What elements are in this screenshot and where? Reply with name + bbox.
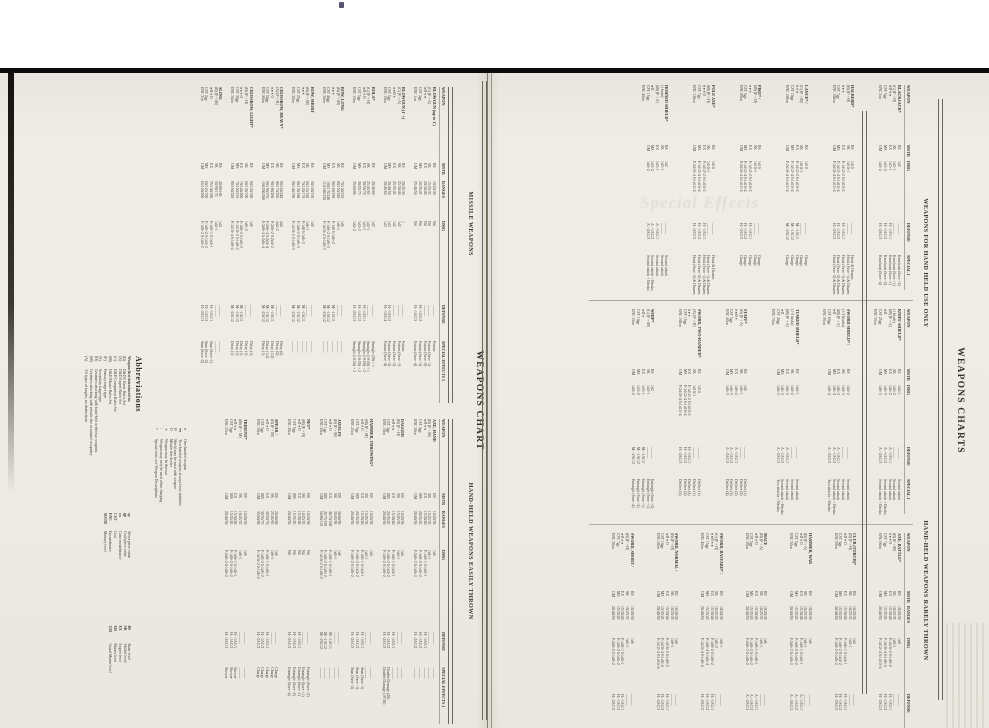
weapon-name: JAVELIN <box>337 419 342 493</box>
cell-value: GM <box>290 163 295 181</box>
cell-value: Second attack + Breaks <box>650 255 655 289</box>
cell-value: Hook (Save -1) & Disarm <box>840 255 845 289</box>
weapon-cell: AXE, HAND(B) [P + M]●Ø✶●CST 4gpENC 30cn <box>412 419 436 493</box>
cell-value: ——— <box>840 447 845 479</box>
code-meaning: Creatures attacking with missile fire or… <box>88 369 93 499</box>
cell-value: 1d6 <box>274 550 279 632</box>
weapon-encumbrance: ENC 30cn <box>610 533 615 591</box>
abbr-legend-item: BSBasic level <box>127 626 132 725</box>
cell-value: ——— <box>335 305 340 341</box>
cell-value: 1d8 <box>674 638 679 694</box>
weapon-cell: SLING(B) [P + M]●Ø✶OCST 2gpENC 2cn <box>199 87 223 163</box>
section-title-easily-thrown: HAND-HELD WEAPONS EASILY THROWN <box>467 374 474 728</box>
cell-value: MS <box>265 163 270 181</box>
cell-value: A: -1AC/1 <box>887 447 892 479</box>
data-column: BSSKEXMSGM <box>724 369 748 385</box>
abbr-legend-2: BSBasic levelSKSkilled levelEXExpert lev… <box>83 626 131 725</box>
cell-value: MS <box>386 493 391 511</box>
column-header-row: WEAPONMSTRRANGESDMGDEFENSESPECIAL EFFECT… <box>439 87 446 403</box>
cell-value: 35/60/80 <box>351 181 356 221</box>
cell-value: Charge <box>743 255 748 289</box>
cell-value: P:1d8+2 S:1d6+2 <box>615 638 620 694</box>
abbr-glyph: GM <box>107 626 112 640</box>
cell-value: 1d10 <box>803 161 808 223</box>
cell-value: H: -1AC/2 <box>417 632 422 667</box>
cell-value: 80/130/180 <box>295 181 300 221</box>
cell-value: P:1d6+2 S:1d4+2 <box>386 550 391 632</box>
cell-value: H: -1AC/1 <box>687 447 692 479</box>
weapon-symbols: ●✶● <box>794 85 799 145</box>
abbr-meaning: Skilled level <box>122 644 127 663</box>
cell-value: H: -1AC/1 <box>747 223 752 255</box>
cell-value: SK <box>847 591 852 606</box>
cell-value: Hook (Save -1) & Disarm <box>706 255 711 289</box>
cell-value: 10/25/35 <box>847 606 852 638</box>
symbol-glyph: * <box>153 428 158 436</box>
cell-value: 45/75/105 <box>323 511 328 550</box>
cell-value: M: -1AC/1 <box>640 447 645 479</box>
cell-value: Deflect (2) <box>682 479 687 513</box>
weapon-name: STAFF* <box>743 309 748 369</box>
symbol-glyph: Ø <box>173 428 178 436</box>
cell-value: GM <box>677 369 682 385</box>
data-column: 1d61d6+1P:1d8+1 S:1d6+1P:1d8+2 S:1d6+2P:… <box>610 638 634 694</box>
cell-value: Entangle (Save +1) <box>301 667 306 724</box>
weapon-name: PIKE* / <box>757 85 762 145</box>
weapon-cost: CST 5gp <box>743 85 748 145</box>
data-column: 1d61d6+1P:1d8+1 S:1d6+1P:1d8+2 S:1d6+2P:… <box>318 550 342 632</box>
cell-value: 1d10 <box>696 385 701 447</box>
cell-value: P:1d10+2 S:1d8+2 <box>664 638 669 694</box>
cell-value: Knockout (Save -1) <box>887 255 892 289</box>
cell-value: H: -1AC/1 <box>208 305 213 341</box>
intro-codes-column: Weapon first introduced in: (B)D&D® Basi… <box>83 356 131 499</box>
weapon-cell: NET*(M) [P + H]●Ø✶OCST 5gpENC 20cn <box>286 419 310 493</box>
cell-value: 1d6 <box>743 385 748 447</box>
cell-value: Second attack <box>664 255 669 289</box>
weapon-availability-code: (B) [P + M] <box>213 87 218 163</box>
cell-value: SK <box>758 591 763 606</box>
cell-value: Nil <box>431 221 436 305</box>
cell-value: SK <box>659 145 664 161</box>
data-column: 80/160/24080/170/25090/180/26090/190/270… <box>260 181 284 221</box>
weapon-name: MACE <box>763 533 768 591</box>
data-column: ——————A: -1AC/1A: -1AC/2A: -2AC/3 <box>724 447 748 479</box>
cell-value: 10/20/30 <box>431 181 436 221</box>
cell-value: P:1d6+2 S:1d4+2 <box>204 221 209 305</box>
cell-value: 15/35/45 <box>749 606 754 638</box>
cell-value: Skewer <box>233 667 238 724</box>
cell-value: EX <box>330 163 335 181</box>
cell-value: 1 <box>401 221 406 305</box>
cell-value: EX <box>664 591 669 606</box>
cell-value: 10/25/35 <box>301 511 306 550</box>
cell-value: Delay (1) <box>239 341 244 399</box>
weapon-cost: CST 1gp <box>323 419 328 493</box>
data-column: ——————H: -1AC/1H: -1AC/2H: -2AC/3 <box>831 223 855 255</box>
weapon-encumbrance: ENC 50cn <box>229 87 234 163</box>
screenshot-root: Special Effects WEAPONS CHART MISSILE WE… <box>0 0 989 728</box>
cell-value: P:1d8+2 S:1d6+2 <box>417 550 422 632</box>
cell-value: P:1d8+1 S:1d6+1 <box>264 550 269 632</box>
section-title-missile: MISSILE WEAPONS <box>467 73 474 374</box>
weapon-encumbrance: ENC 30cn <box>744 533 749 591</box>
cell-value: P:1d8+1 S:1d6+1 <box>620 638 625 694</box>
weapon-encumbrance: ENC 120cn <box>691 85 696 145</box>
cell-value: 60/110/160 <box>305 181 310 221</box>
cell-value: P:1d12+2 S:1d10+2 <box>747 161 752 223</box>
cell-value: ——— <box>391 305 396 341</box>
data-column: BSSKEXMSGM <box>255 493 279 511</box>
data-column: 1d101d10+1P:1d12+2 S:1d10+2P:1d12+4 S:1d… <box>784 161 808 223</box>
weapon-availability-code: (B) [P + M] <box>427 419 432 493</box>
data-column: 1d101d10+1P:1d12+2 S:1d10+2P:1d12+4 S:1d… <box>831 161 855 223</box>
cell-value: ——— <box>213 305 218 341</box>
weapon-symbols: ●Ø✶● <box>422 87 427 163</box>
cell-value: ——— <box>412 667 417 724</box>
cell-value: EX <box>620 591 625 606</box>
weapon-cost: CST 10gp <box>660 533 665 591</box>
data-column: BSSKEXMSGM <box>833 591 857 606</box>
cell-value: Entangle (Save +2) <box>305 667 310 724</box>
cell-value: Hook (Save -2) & Disarm <box>696 255 701 289</box>
weapon-availability-code: (M) [P + H] <box>752 85 757 145</box>
cell-value: BS <box>664 145 669 161</box>
weapon-cost: CST 30gp <box>234 87 239 163</box>
cell-value: SK <box>238 493 243 511</box>
data-column: 1d101d10+1P:1d12+2 S:1d10+2P:1d12+4 S:1d… <box>738 161 762 223</box>
cell-value: P:1d8 S:1d6+2 <box>330 221 335 305</box>
data-column: Strangle (20) + 1Strangle (19-20) + 1Str… <box>351 341 375 399</box>
weapon-entry: BOW, LONG(B) [P + M]●●✶CST 40gpENC 30cnB… <box>321 87 345 403</box>
cell-value: ——— <box>248 305 253 341</box>
cell-value: Hook (Save -2) & Disarm <box>691 255 696 289</box>
weapon-entry: AXE, HAND(B) [P + M]●Ø✶●CST 4gpENC 30cnB… <box>412 419 436 724</box>
cell-value: P:1d10+4 S:1d8+4 <box>229 221 234 305</box>
cell-value: M: -1AC/2 <box>323 632 328 667</box>
cell-value: Second attack <box>654 255 659 289</box>
cell-value: Second attack + Breaks <box>877 479 882 513</box>
cell-value: 55/100/180 <box>208 181 213 221</box>
weapon-cost: CST 15gp <box>645 85 650 145</box>
cell-value: ——— <box>799 223 804 255</box>
cell-value: 1d3+1 <box>654 161 659 223</box>
cell-value: H: -1AC/2 <box>354 632 359 667</box>
cell-value: MS <box>326 163 331 181</box>
data-column: Hook & DisarmHook (Save -1) & DisarmHook… <box>691 255 715 289</box>
cell-value: 1d2 <box>664 161 669 223</box>
weapon-cell: SPEAR /(B) [P + M]●Ø✶OCST 3gpENC 30cn <box>255 419 279 493</box>
abbr-legend-item: GMGrand Master level <box>107 626 112 725</box>
weapon-entry: POLE AXE*(M) [P + H]●●✶OCST 7gpENC 120cn… <box>691 85 715 290</box>
data-column: 1d21d2+11d3+11d3+21d4+2 <box>351 221 375 305</box>
cell-value: 1d4+1 <box>364 550 369 632</box>
cell-value: M: -2AC/2 <box>784 223 789 255</box>
data-column: ——————M: -1AC/1M: -1AC/2M: -2AC/2 <box>260 305 284 341</box>
symbol-meaning: One-handed weapon <box>182 439 187 470</box>
cell-value: 15/30/40 <box>753 606 758 638</box>
data-column: BSSKEXMSGM <box>826 369 850 385</box>
cell-value: M: -2AC/2 <box>318 632 323 667</box>
cell-value: 1d6+3 <box>882 385 887 447</box>
data-column: 1d81d8+1P:1d10+2 S:1d8+2P:1d10+4 S:1d8+4… <box>877 638 901 694</box>
cell-value: Hook & Disarm <box>850 255 855 289</box>
cell-value: 15/25/35 <box>395 511 400 550</box>
cell-value: ——— <box>290 341 295 399</box>
weapon-cost: CST 5gp <box>882 85 887 145</box>
cell-value: Second attack + Breaks <box>831 479 836 513</box>
cell-value: 15/30/40 <box>709 606 714 638</box>
cell-value: MS <box>356 163 361 181</box>
column-header: SPECIAL 1 <box>906 479 911 513</box>
weapon-encumbrance: ENC 10cn <box>381 419 386 493</box>
cell-value: GM <box>775 369 780 385</box>
data-column: ——————H: -1AC/1H: -1AC/2H: -2AC/3 <box>691 223 715 255</box>
cell-value: P:1d12+2 S:1d10+2 <box>794 161 799 223</box>
cell-value: Delay (1/2) <box>265 341 270 399</box>
code-glyph: (M) <box>107 356 112 366</box>
data-column: BSSKEXMSGM <box>877 591 901 606</box>
weapon-availability-code: (C) [P + A] <box>396 87 401 163</box>
cell-value: P:1d12+4 S:1d10+4 <box>682 385 687 447</box>
cell-value: H: -2AC/2 <box>255 632 260 667</box>
cell-value: 1d6 <box>337 550 342 632</box>
cell-value: BS <box>852 591 857 606</box>
data-column: ——————H: -1AC/1H: -1AC/2H: -2AC/2 <box>412 632 436 667</box>
cell-value: MS <box>882 591 887 606</box>
cell-value: ——— <box>669 694 674 728</box>
cell-value: GM <box>318 493 323 511</box>
column-header: WEAPON <box>441 87 446 163</box>
weapon-cell: POLE AXE*(M) [P + H]●●✶OCST 7gpENC 120cn <box>691 85 715 145</box>
cell-value: P:1d6+2 S:1d4+2 <box>838 638 843 694</box>
cell-value: BS <box>896 369 901 385</box>
data-column: ——————M: -1AC/1M: -1AC/2M: -2AC/3 <box>631 447 655 479</box>
code-meaning: D&D Expert Rules Set <box>117 369 122 499</box>
cell-value: A: -1AC/2 <box>650 223 655 255</box>
cell-value: 50/100/150 <box>309 181 314 221</box>
cell-value: 1d6 <box>431 550 436 632</box>
cell-value: 1d4+2 <box>645 161 650 223</box>
cell-value: 20/40/50 <box>877 606 882 638</box>
cell-value: 1d10 <box>710 161 715 223</box>
abbr-legend-item: cnCoin encumbrance <box>117 513 122 612</box>
cell-value: ——— <box>852 694 857 728</box>
cell-value: 30/40/50 <box>387 181 392 221</box>
cell-value: BS <box>309 163 314 181</box>
cell-value: Stun (Save -1) <box>359 667 364 724</box>
cell-value: 10/20/30 <box>674 606 679 638</box>
cell-value: SK <box>213 163 218 181</box>
data-column: PoisonPoison (Save -1)Poison (Save -2)Po… <box>382 341 406 399</box>
weapon-symbols: ●Ø✶O <box>208 87 213 163</box>
code-legend-item: (M)D&D Master Rules Set <box>107 356 112 499</box>
data-column: BSSKEXMSGM <box>412 493 436 511</box>
data-column: Entangle (Save +2)Entangle (Save +1)Enta… <box>631 479 655 513</box>
cell-value: BS <box>763 591 768 606</box>
cell-value: H: -1AC/1 <box>361 305 366 341</box>
cell-value: EX <box>798 591 803 606</box>
cell-value: 20/40/60 <box>274 511 279 550</box>
data-column: ——————A: -1AC/1A: -1AC/2A: -2AC/3 <box>744 694 768 728</box>
cell-value: 15/30/40 <box>422 511 427 550</box>
cell-value: BS <box>340 163 345 181</box>
weapon-cost: CST 7gp <box>615 533 620 591</box>
cell-value: BS <box>896 591 901 606</box>
cell-value: ——— <box>696 447 701 479</box>
data-column: 1d61d6+1P:1d8 S:1d6+2P:1d8+2 S:1d6+3P:1d… <box>321 221 345 305</box>
column-header: RANGES <box>441 511 446 550</box>
abbr-glyph: SK <box>122 626 127 640</box>
abbr-glyph: gp <box>122 513 127 527</box>
cell-value: 15/30/40 <box>296 511 301 550</box>
cell-value: Stun (Save -1) <box>208 341 213 399</box>
cell-value: 1d8+4 <box>826 385 831 447</box>
cell-value: Poison (Save -2) <box>391 341 396 399</box>
cell-value: 1d4+2 <box>877 161 882 223</box>
cell-value: ——— <box>396 305 401 341</box>
cell-value: Skewer <box>223 667 228 724</box>
weapon-cost: CST 7gp <box>836 85 841 145</box>
data-column: NilNilNilNilNil <box>286 550 310 632</box>
weapon-cell: BOW, SHORT(B) [P + M]●●✶CST 25gpENC 20cn <box>290 87 314 163</box>
cell-value: BS <box>674 591 679 606</box>
cell-value: MS <box>789 145 794 161</box>
weapon-name: POLE AXE* <box>710 85 715 145</box>
left-page: WEAPONS CHART MISSILE WEAPONS HAND-HELD … <box>8 73 487 728</box>
data-column: BSSKEXMSGM <box>290 163 314 181</box>
code-glyph: (H) <box>93 356 98 366</box>
data-column: BSSKEXMSGM <box>784 145 808 161</box>
cell-value: P:2d6+2 S:1d8+2 <box>744 638 749 694</box>
cell-value: 15/30/40 <box>359 511 364 550</box>
data-column: 1d21d2+11d3+11d3+21d4+2 <box>645 161 669 223</box>
cell-value: A: -1AC/2 <box>749 694 754 728</box>
cell-value: P:1d8+2 S:1d6+2 <box>260 550 265 632</box>
data-column: PoisonPoison (Save -1)Poison (Save -2)Po… <box>412 341 436 399</box>
data-column: BSSKEXMSGM <box>260 163 284 181</box>
data-column: ——————M: -1AC/1M: -1AC/2M: -2AC/2 <box>290 305 314 341</box>
cell-value: MS <box>650 145 655 161</box>
data-column: 10/20/3010/25/3515/30/4015/35/4520/40/50 <box>286 511 310 550</box>
cell-value: 10/20/30 <box>763 606 768 638</box>
data-column: ——————H: -1AC/1H: -1AC/2H: -2AC/3 <box>877 694 901 728</box>
cell-value: ——— <box>218 341 223 399</box>
cell-value: 1d4 <box>852 638 857 694</box>
cell-value: EX <box>840 145 845 161</box>
weapon-entry: TUSKED SHIELD*(1-3 tusks)(M) [P + A]●ØCS… <box>770 309 798 514</box>
cell-value: M: -1AC/2 <box>636 447 641 479</box>
cell-value: H: -1AC/2 <box>228 632 233 667</box>
cell-value: Knockout (Save +2) <box>896 255 901 289</box>
abbr-meaning: Grand Master level <box>107 644 112 673</box>
cell-value: ——— <box>242 667 247 724</box>
cell-value: ——— <box>295 341 300 399</box>
cell-value: Poison <box>431 341 436 399</box>
weapon-entry: SWORD, NORMAL /(B) [P + H]●Ø✶OCST 10gpEN… <box>655 533 679 728</box>
data-column: 1d101d10+1P:1d12+2 S:1d10+2P:1d12+4 S:1d… <box>691 161 715 223</box>
cell-value: 1d6+1 <box>269 550 274 632</box>
cell-value: BS <box>850 145 855 161</box>
cell-value: 1d8+1 <box>892 638 897 694</box>
code-glyph: (S) <box>98 356 103 366</box>
cell-value: 10/25/35 <box>625 606 630 638</box>
cell-value: 30/45/60 <box>382 181 387 221</box>
cell-value: Nil <box>427 221 432 305</box>
cell-value: EX <box>239 163 244 181</box>
weapon-availability-code: (B) [P + H] <box>845 85 850 145</box>
cell-value: EX <box>654 145 659 161</box>
cell-value: 1d4+2 <box>631 385 636 447</box>
column-header: SPECIAL EFFECTS 1 <box>441 341 446 399</box>
cell-value: BS <box>629 591 634 606</box>
cell-value: BS <box>431 163 436 181</box>
weapon-cost: CST 15gp <box>682 309 687 369</box>
cell-value: Knockout (Save +1) <box>892 255 897 289</box>
cell-value: SK <box>752 145 757 161</box>
weapon-symbols: ●●✶O <box>701 85 706 145</box>
cell-value: ——— <box>803 694 808 728</box>
cell-value: 50/90/170 <box>213 181 218 221</box>
weapon-name: SWORD SHIELD* / <box>845 309 850 369</box>
abbr-legend-item: gpGold piece value <box>122 513 127 612</box>
cell-value: ——— <box>337 667 342 724</box>
data-column: 10/20/3015/25/3515/30/4020/35/4520/40/50 <box>412 511 436 550</box>
cell-value: P:2d6+2 S:1d8+2 <box>610 638 615 694</box>
cell-value: ——— <box>300 341 305 399</box>
weapon-cell: TRIDENT*(M) [P + M]●Ø✶●CST 5gpENC 25cn <box>223 419 247 493</box>
data-column: Delay (1)Delay (1)Delay (1)Delay (1)Dela… <box>229 341 253 399</box>
cell-value: ——— <box>400 632 405 667</box>
data-column: ——————H: -1AC/1H: -1AC/2H: -2AC/3 <box>381 632 405 667</box>
weapon-encumbrance: ENC 100cn <box>677 309 682 369</box>
table-top-rule <box>448 87 453 403</box>
weapon-availability-code: (B) [P + A] <box>738 309 743 369</box>
data-column: ——————M: -1AC/1M: -1AC/2M: -2AC/2 <box>318 632 342 667</box>
cell-value: EX <box>887 145 892 161</box>
cell-value: Nil <box>417 221 422 305</box>
code-legend-item: (A)All types of targets, no distinctions <box>83 356 88 499</box>
weapon-symbols: ●Ø✶● <box>390 419 395 493</box>
cell-value: ——— <box>390 667 395 724</box>
weapon-encumbrance: ENC 20cn <box>290 87 295 163</box>
cell-value: ——— <box>847 694 852 728</box>
cell-value: Entangle (Save -1) <box>296 667 301 724</box>
cell-value: M: -1AC/1 <box>794 223 799 255</box>
cell-value: P:2d10+4 S:1d12+4 <box>831 161 836 223</box>
cell-value: 1d4 <box>400 550 405 632</box>
data-column: ——————A: -1AC/1A: -1AC/2A: -2AC/3 <box>877 447 901 479</box>
title-rule <box>938 99 943 700</box>
cell-value: SK <box>645 369 650 385</box>
cell-value: 30/60/90 <box>337 511 342 550</box>
abbreviations-columns: Weapon first introduced in: (B)D&D® Basi… <box>83 356 131 724</box>
section-titles: WEAPONS FOR HAND HELD USE ONLY HAND-HELD… <box>922 73 929 728</box>
cell-value: BS <box>274 493 279 511</box>
cell-value: A: -1AC/1 <box>798 694 803 728</box>
weapon-name: HALBERD* <box>850 85 855 145</box>
data-column: Entangle (Save +2)Entangle (Save +1)Enta… <box>286 667 310 724</box>
cell-value: 1d6+2 <box>714 638 719 694</box>
weapon-encumbrance: ENC 10cn <box>382 87 387 163</box>
cell-value: P:1d10+2 S:1d8+3 <box>290 221 295 305</box>
cell-value: 1d2+1 <box>892 161 897 223</box>
cell-value: 2d4 <box>279 221 284 305</box>
cell-value: MS <box>260 493 265 511</box>
cell-value: 15/35/45 <box>291 511 296 550</box>
weapon-cost: CST 7gp <box>696 85 701 145</box>
cell-value: 1d10+1 <box>752 161 757 223</box>
